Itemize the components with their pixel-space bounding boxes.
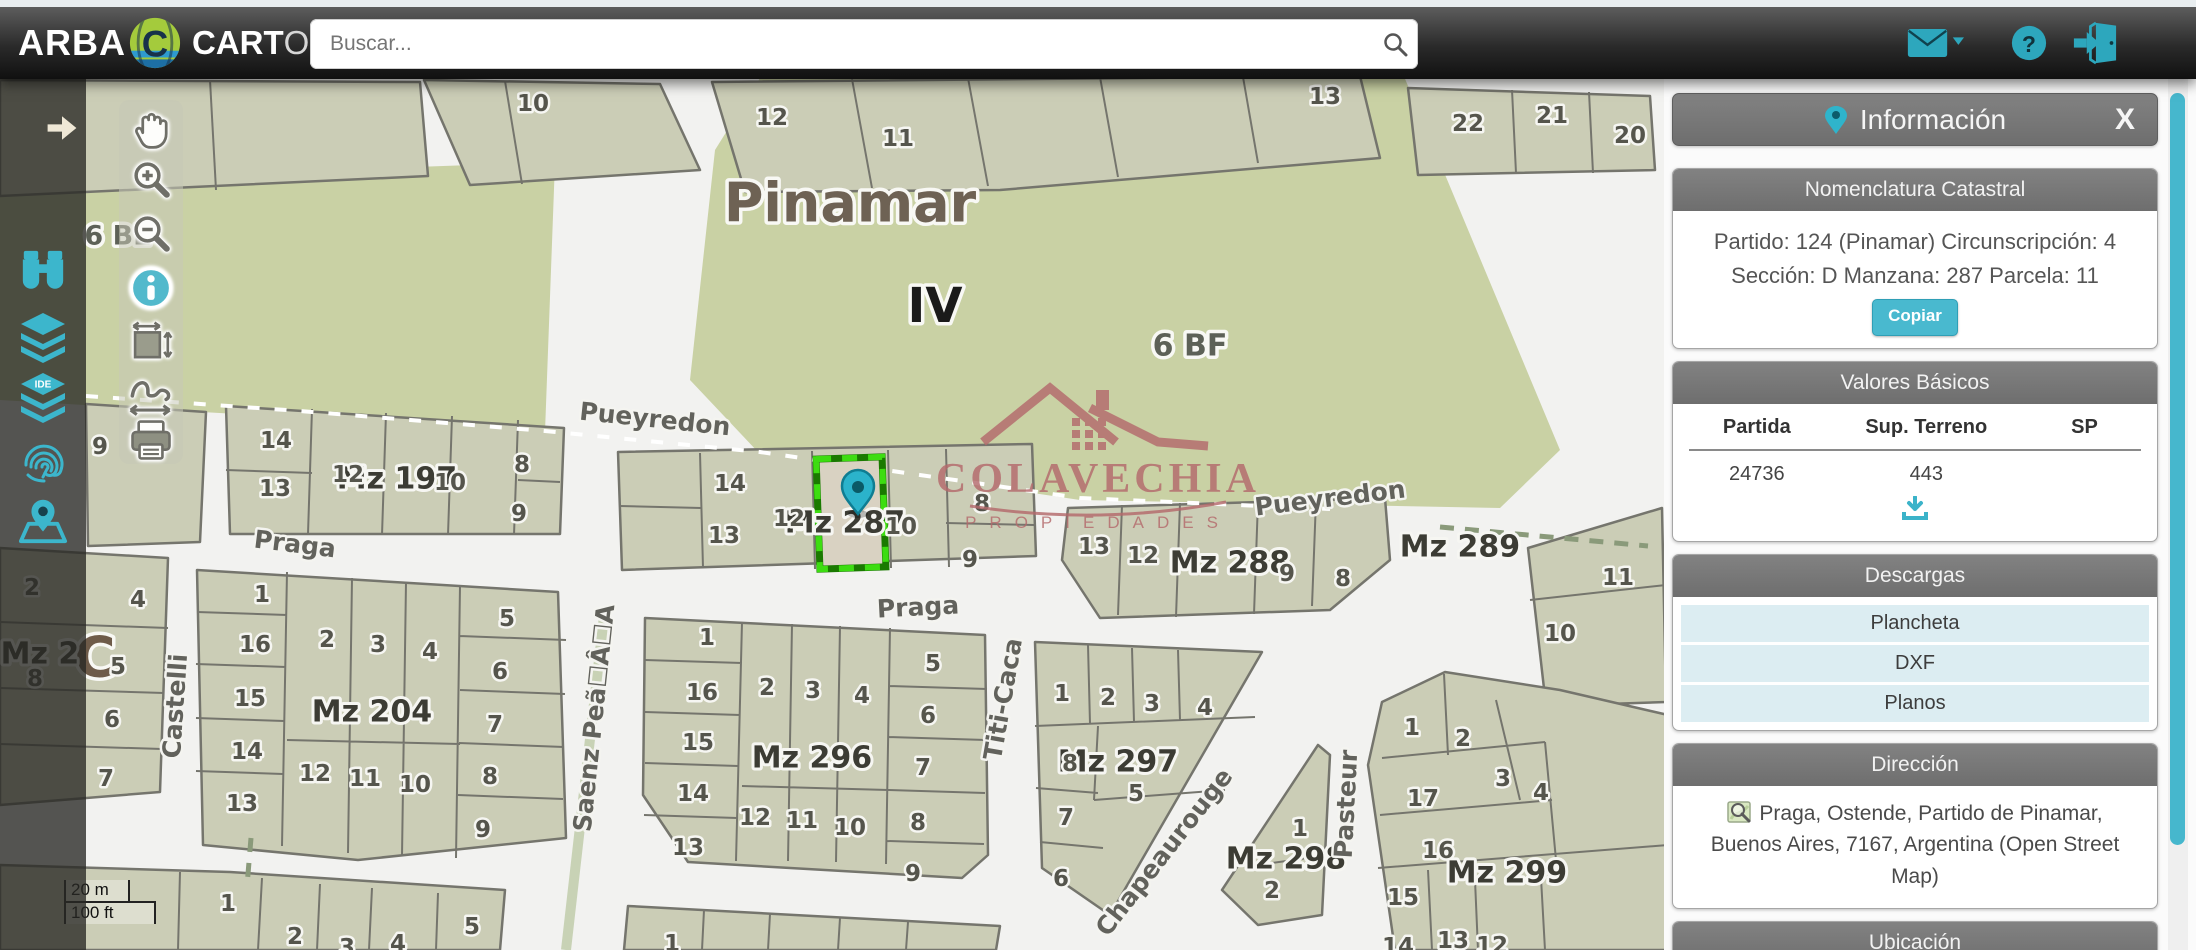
parcel-label: 7 [98, 766, 114, 792]
nomenclatura-title: Nomenclatura Catastral [1673, 169, 2157, 211]
valores-title: Valores Básicos [1673, 362, 2157, 404]
print-icon[interactable] [128, 418, 174, 462]
direccion-title: Dirección [1673, 744, 2157, 786]
parcel-label: 10 [1544, 621, 1576, 647]
parcel-label: 4 [1533, 780, 1549, 806]
parcel-label: 5 [925, 651, 941, 677]
manzana-label: Mz 288 [1170, 546, 1290, 581]
panel-scrollbar-track[interactable] [2168, 79, 2188, 950]
nomenclatura-line2: Sección: D Manzana: 287 Parcela: 11 [1685, 259, 2145, 293]
close-icon[interactable]: X [2115, 105, 2135, 135]
parcel-label: 8 [482, 764, 498, 790]
parcel-label: 12 [739, 805, 771, 831]
parcel-label: 6 [920, 703, 936, 729]
ubicacion-card: Ubicación [1672, 921, 2158, 950]
parcel-label: 21 [1536, 103, 1568, 129]
parcel-label: 9 [905, 861, 921, 887]
parcel-label: 8 [1062, 751, 1078, 777]
parcel-label: 1 [1054, 681, 1070, 707]
map-toolbar [119, 100, 183, 464]
svg-text:COLAVECHIA: COLAVECHIA [936, 456, 1260, 502]
parcel-label: 13 [226, 791, 258, 817]
parcel-label: 7 [1058, 805, 1074, 831]
parcel-label: 13 [708, 523, 740, 549]
zone-label: 6 BF [1153, 329, 1228, 364]
pan-hand-icon[interactable] [129, 108, 173, 152]
parcel-label: 12 [773, 506, 805, 532]
parcel-label: 7 [487, 712, 503, 738]
parcel-label: 1 [254, 582, 270, 608]
zone-label: Pinamar [724, 172, 977, 235]
parcel-label: 4 [130, 587, 146, 613]
parcel-label: 1 [1404, 715, 1420, 741]
parcel-label: 4 [390, 931, 406, 950]
svg-text:IDE: IDE [35, 380, 52, 391]
locate-on-map-icon[interactable] [17, 495, 69, 545]
parcel-label: 12 [332, 462, 364, 488]
parcel-label: 3 [805, 678, 821, 704]
parcel-label: 2 [759, 675, 775, 701]
parcel-label: 2 [287, 924, 303, 950]
manzana-label: Mz 298 [1226, 842, 1346, 877]
descargas-card: Descargas Plancheta DXF Planos [1672, 554, 2158, 731]
parcel-label: 8 [514, 452, 530, 478]
parcel-label: 4 [854, 683, 870, 709]
col-partida: Partida [1689, 416, 1825, 450]
left-sidebar: IDE [0, 79, 86, 950]
svg-text:C: C [142, 23, 168, 64]
street-label: Praga [876, 590, 960, 623]
parcel-label: 12 [1127, 543, 1159, 569]
parcel-label: 12 [299, 761, 331, 787]
parcel-label: 16 [239, 632, 271, 658]
parcel-label: 2 [319, 627, 335, 653]
ubicacion-title: Ubicación [1673, 922, 2157, 950]
parcel-label: 17 [1407, 786, 1439, 812]
cell-sup-terreno: 443 [1825, 450, 2028, 486]
parcel-label: 14 [231, 739, 263, 765]
parcel-label: 14 [260, 428, 292, 454]
parcel-label: 1 [220, 891, 236, 917]
search-icon[interactable] [1372, 31, 1418, 57]
info-panel: Información X Nomenclatura Catastral Par… [1664, 79, 2196, 950]
osm-icon [1727, 799, 1753, 825]
parcel-label: 11 [1602, 565, 1634, 591]
copy-button[interactable]: Copiar [1872, 299, 1958, 335]
measure-area-icon[interactable] [128, 320, 174, 366]
col-sp: SP [2028, 416, 2141, 450]
parcel-label: 9 [962, 547, 978, 573]
download-planos[interactable]: Planos [1681, 685, 2149, 722]
messages-icon[interactable] [1906, 26, 1964, 60]
parcel-label: 6 [104, 707, 120, 733]
parcel-label: 6 [1053, 866, 1069, 892]
parcel-label: 14 [1382, 934, 1414, 950]
parcel-label: 10 [834, 815, 866, 841]
direccion-card: Dirección Praga, Ostende, Partido de Pin… [1672, 743, 2158, 910]
parcel-label: 3 [339, 935, 355, 950]
cell-sp [2028, 450, 2141, 486]
parcel-label: 2 [1100, 685, 1116, 711]
parcel-label: 1 [699, 625, 715, 651]
parcel-label: 2 [1264, 878, 1280, 904]
download-icon [1902, 496, 1928, 520]
fingerprint-icon[interactable] [18, 431, 68, 483]
search-binoculars-icon[interactable] [18, 247, 68, 295]
col-sup-terreno: Sup. Terreno [1825, 416, 2028, 450]
panel-header: Información X [1672, 93, 2158, 146]
download-dxf[interactable]: DXF [1681, 645, 2149, 682]
parcel-label: 5 [1128, 781, 1144, 807]
panel-title: Información [1860, 104, 2006, 136]
nomenclatura-line1: Partido: 124 (Pinamar) Circunscripción: … [1685, 225, 2145, 259]
parcel-label: 15 [682, 730, 714, 756]
parcel-label: 11 [786, 808, 818, 834]
parcel-label: 9 [511, 501, 527, 527]
parcel-label: 8 [1335, 566, 1351, 592]
help-icon[interactable]: ? [2010, 24, 2048, 62]
expand-sidebar-arrow-icon[interactable] [44, 111, 80, 145]
search-input[interactable] [310, 32, 1372, 56]
parcel-label: 3 [1495, 766, 1511, 792]
parcel-label: 12 [1476, 933, 1508, 950]
parcel-label: 10 [434, 470, 466, 496]
info-pin-icon [1824, 105, 1848, 135]
parcel-label: 16 [686, 680, 718, 706]
valores-basicos-card: Valores Básicos Partida Sup. Terreno SP … [1672, 361, 2158, 542]
parcel-label: 15 [234, 686, 266, 712]
parcel-label: 5 [464, 914, 480, 940]
parcel-label: 8 [910, 810, 926, 836]
parcel-label: 14 [677, 781, 709, 807]
cell-partida: 24736 [1689, 450, 1825, 486]
manzana-label: Mz 296 [752, 741, 872, 776]
zoom-out-icon[interactable] [130, 212, 172, 254]
parcel-label: 10 [517, 91, 549, 117]
parcel-label: 4 [1197, 695, 1213, 721]
identify-info-icon[interactable] [129, 266, 173, 310]
parcel-label: 3 [1144, 691, 1160, 717]
browser-strip [0, 0, 2196, 7]
top-bar: ARBA C CARTO [0, 7, 2196, 79]
carto-globe-icon: C [128, 16, 182, 70]
parcel-label: 16 [1422, 838, 1454, 864]
parcel-label: 10 [399, 772, 431, 798]
ide-layers-icon[interactable]: IDE [18, 371, 68, 423]
download-plancheta[interactable]: Plancheta [1681, 605, 2149, 642]
parcel-label: 14 [714, 471, 746, 497]
parcel-label: 5 [110, 654, 126, 680]
parcel-label: 13 [1309, 84, 1341, 110]
parcel-label: 22 [1452, 111, 1484, 137]
parcel-label: 20 [1614, 123, 1646, 149]
logout-icon[interactable] [2072, 21, 2118, 65]
svg-text:?: ? [2022, 31, 2036, 57]
download-button[interactable] [1689, 486, 2141, 531]
manzana-label: Mz 204 [312, 695, 432, 730]
parcel-label: 13 [672, 835, 704, 861]
parcel-label: 15 [1387, 885, 1419, 911]
carto-logo: C CARTO [128, 16, 309, 70]
parcel-label: 11 [882, 126, 914, 152]
panel-scrollbar-thumb[interactable] [2170, 93, 2185, 845]
parcel-label: 9 [475, 817, 491, 843]
parcel-label: 12 [756, 105, 788, 131]
parcel-label: 11 [349, 766, 381, 792]
table-row: 24736 443 [1689, 450, 2141, 486]
parcel-label: 6 [492, 659, 508, 685]
zoom-in-icon[interactable] [130, 158, 172, 200]
direccion-text: Praga, Ostende, Partido de Pinamar, Buen… [1711, 802, 2120, 888]
parcel-label: 13 [259, 476, 291, 502]
nomenclatura-card: Nomenclatura Catastral Partido: 124 (Pin… [1672, 168, 2158, 349]
parcel-label: 3 [370, 632, 386, 658]
manzana-label: Mz 289 [1400, 530, 1520, 565]
layers-icon[interactable] [18, 311, 68, 363]
measure-length-icon[interactable] [127, 372, 175, 418]
parcel-label: 4 [422, 639, 438, 665]
parcel-label: 9 [92, 434, 108, 460]
svg-text:PROPIEDADES: PROPIEDADES [965, 513, 1231, 532]
carto-wordmark: CARTO [192, 24, 309, 62]
street-label: Pasteur [1329, 748, 1364, 858]
parcel-label: 7 [915, 755, 931, 781]
manzana-label: Mz 299 [1447, 856, 1567, 891]
search-bar [310, 19, 1418, 69]
parcel-label: 1 [1292, 816, 1308, 842]
parcel-label: 13 [1078, 534, 1110, 560]
parcel-label: 10 [885, 514, 917, 540]
parcel-label: 2 [1455, 726, 1471, 752]
parcel-label: 13 [1437, 928, 1469, 950]
parcel-label: 1 [664, 931, 680, 950]
zone-label: IV [907, 278, 962, 334]
parcel-label: 9 [1279, 561, 1295, 587]
arba-logo: ARBA [18, 22, 126, 64]
descargas-title: Descargas [1673, 555, 2157, 597]
parcel-label: 5 [499, 606, 515, 632]
